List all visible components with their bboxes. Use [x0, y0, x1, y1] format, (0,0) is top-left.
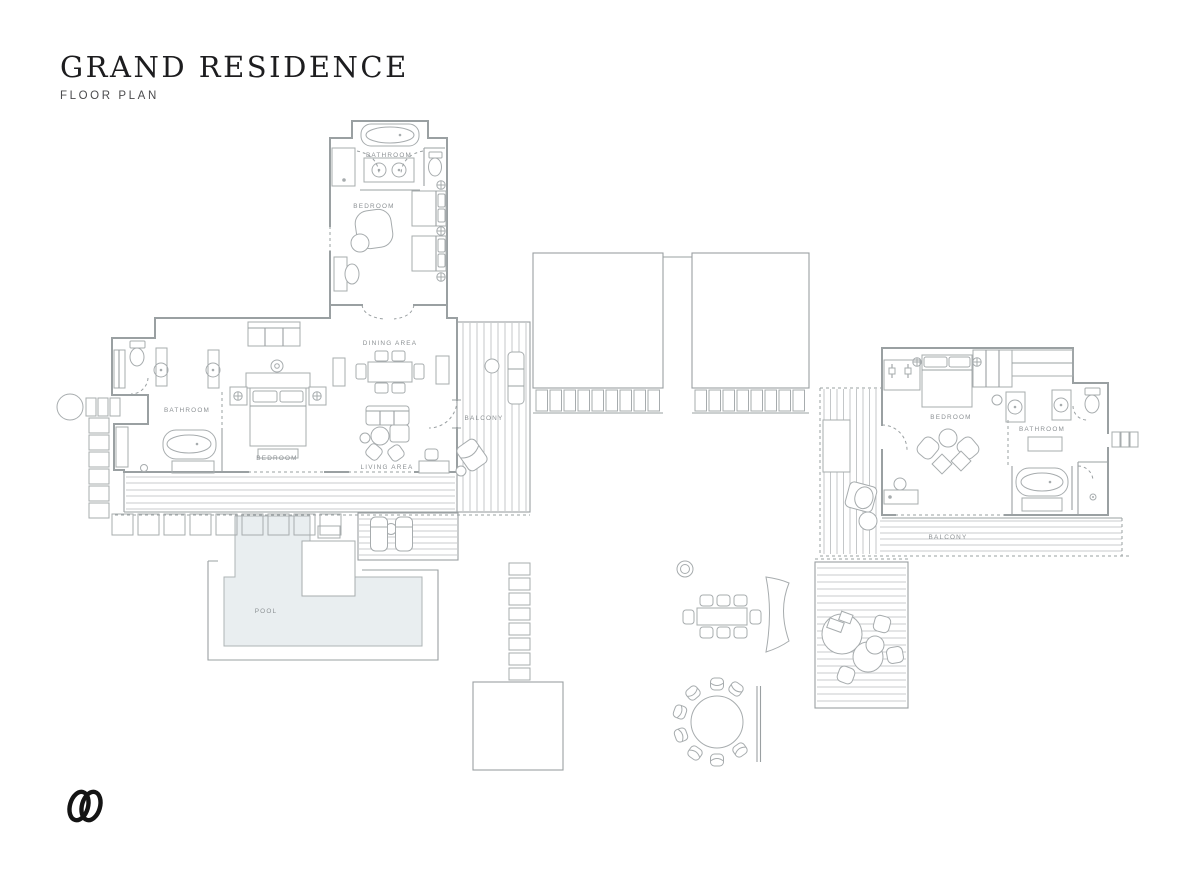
luggage-rack-icon	[884, 360, 920, 390]
armchair-icon	[886, 646, 905, 665]
desk-icon	[334, 257, 359, 291]
floor-drain-icon	[141, 465, 148, 472]
side-table-icon	[360, 433, 370, 443]
side-table-icon	[485, 359, 499, 373]
double-sink-icon	[360, 158, 420, 190]
desk-icon	[884, 478, 918, 504]
shower-icon	[1078, 462, 1108, 515]
shower-icon	[332, 148, 355, 186]
room-label: LIVING AREA	[361, 464, 414, 471]
shelf-icon	[116, 427, 128, 467]
room-label: BATHROOM	[366, 152, 412, 159]
side-table-icon	[866, 636, 884, 654]
floor-plan-page: GRAND RESIDENCE FLOOR PLAN	[0, 0, 1192, 880]
wardrobe-icon	[973, 350, 1073, 387]
armchair-icon	[386, 443, 405, 462]
coffee-table-icon	[371, 427, 389, 445]
pavilion-structures	[533, 253, 809, 413]
armchair-icon	[351, 208, 394, 252]
room-label: POOL	[255, 608, 278, 615]
outdoor-table-icon	[683, 595, 761, 638]
side-table-icon	[859, 512, 877, 530]
sun-lounger-icon	[371, 517, 388, 551]
lounge-deck	[815, 559, 908, 708]
toilet-icon	[1073, 388, 1100, 420]
dining-table-icon	[356, 351, 424, 393]
room-label: BEDROOM	[353, 203, 394, 210]
sink-icon	[154, 348, 168, 386]
side-deck	[820, 388, 882, 556]
twin-bed-icon	[412, 191, 446, 226]
floor-plan-drawing: BATHROOM BEDROOM	[0, 0, 1192, 880]
bench-icon	[1028, 437, 1062, 451]
terrace-deck	[115, 472, 530, 515]
double-bed-icon	[230, 360, 326, 458]
cabinet-icon	[436, 356, 449, 384]
room-label: BEDROOM	[930, 414, 971, 421]
room-label: BATHROOM	[1019, 426, 1065, 433]
balcony-left: BALCONY	[455, 322, 530, 512]
wardrobe-icon	[248, 322, 300, 346]
desk-icon	[419, 449, 449, 473]
outdoor-sofa-icon	[508, 352, 524, 404]
outdoor-dining	[672, 561, 789, 766]
counter-icon	[333, 358, 345, 386]
round-dining-table-icon	[672, 678, 749, 766]
screen-wall	[757, 686, 761, 762]
room-label: BALCONY	[929, 534, 968, 541]
bathtub-icon	[163, 430, 216, 473]
bathtub-icon	[1012, 466, 1072, 515]
sink-icon	[992, 392, 1025, 422]
entry-steps	[1112, 432, 1138, 447]
double-bed-icon	[922, 355, 972, 407]
steps	[533, 390, 809, 413]
lounge-chair-icon	[844, 481, 878, 513]
bathtub-icon	[361, 124, 419, 146]
living-dining: DINING AREA LIVING AREA	[333, 340, 449, 473]
armchair-icon	[836, 665, 857, 686]
landing-platform	[473, 682, 563, 770]
brand-logo-icon	[60, 786, 112, 826]
toilet-icon	[114, 341, 148, 394]
tree-icon	[57, 394, 83, 420]
room-label: BEDROOM	[256, 455, 297, 462]
twin-bed-icon	[412, 236, 446, 271]
privacy-screen-icon	[766, 577, 789, 652]
upper-suite: BATHROOM BEDROOM	[330, 121, 447, 319]
sink-icon	[1052, 390, 1071, 420]
sun-lounger-icon	[396, 517, 413, 551]
seating-group-icon	[915, 429, 982, 474]
room-label: BALCONY	[465, 415, 504, 422]
planter-icon	[677, 561, 693, 577]
room-label: BATHROOM	[164, 407, 210, 414]
pool-platform	[302, 541, 355, 596]
daybed-icon	[823, 420, 850, 472]
walkway	[473, 563, 563, 770]
sink-icon	[206, 350, 220, 388]
pool-step	[318, 526, 340, 538]
room-label: DINING AREA	[363, 340, 417, 347]
sun-deck	[358, 513, 458, 560]
toilet-icon	[424, 148, 445, 186]
side-table-icon	[456, 466, 466, 476]
guest-suite: BEDROOM BATHROOM	[882, 348, 1138, 515]
